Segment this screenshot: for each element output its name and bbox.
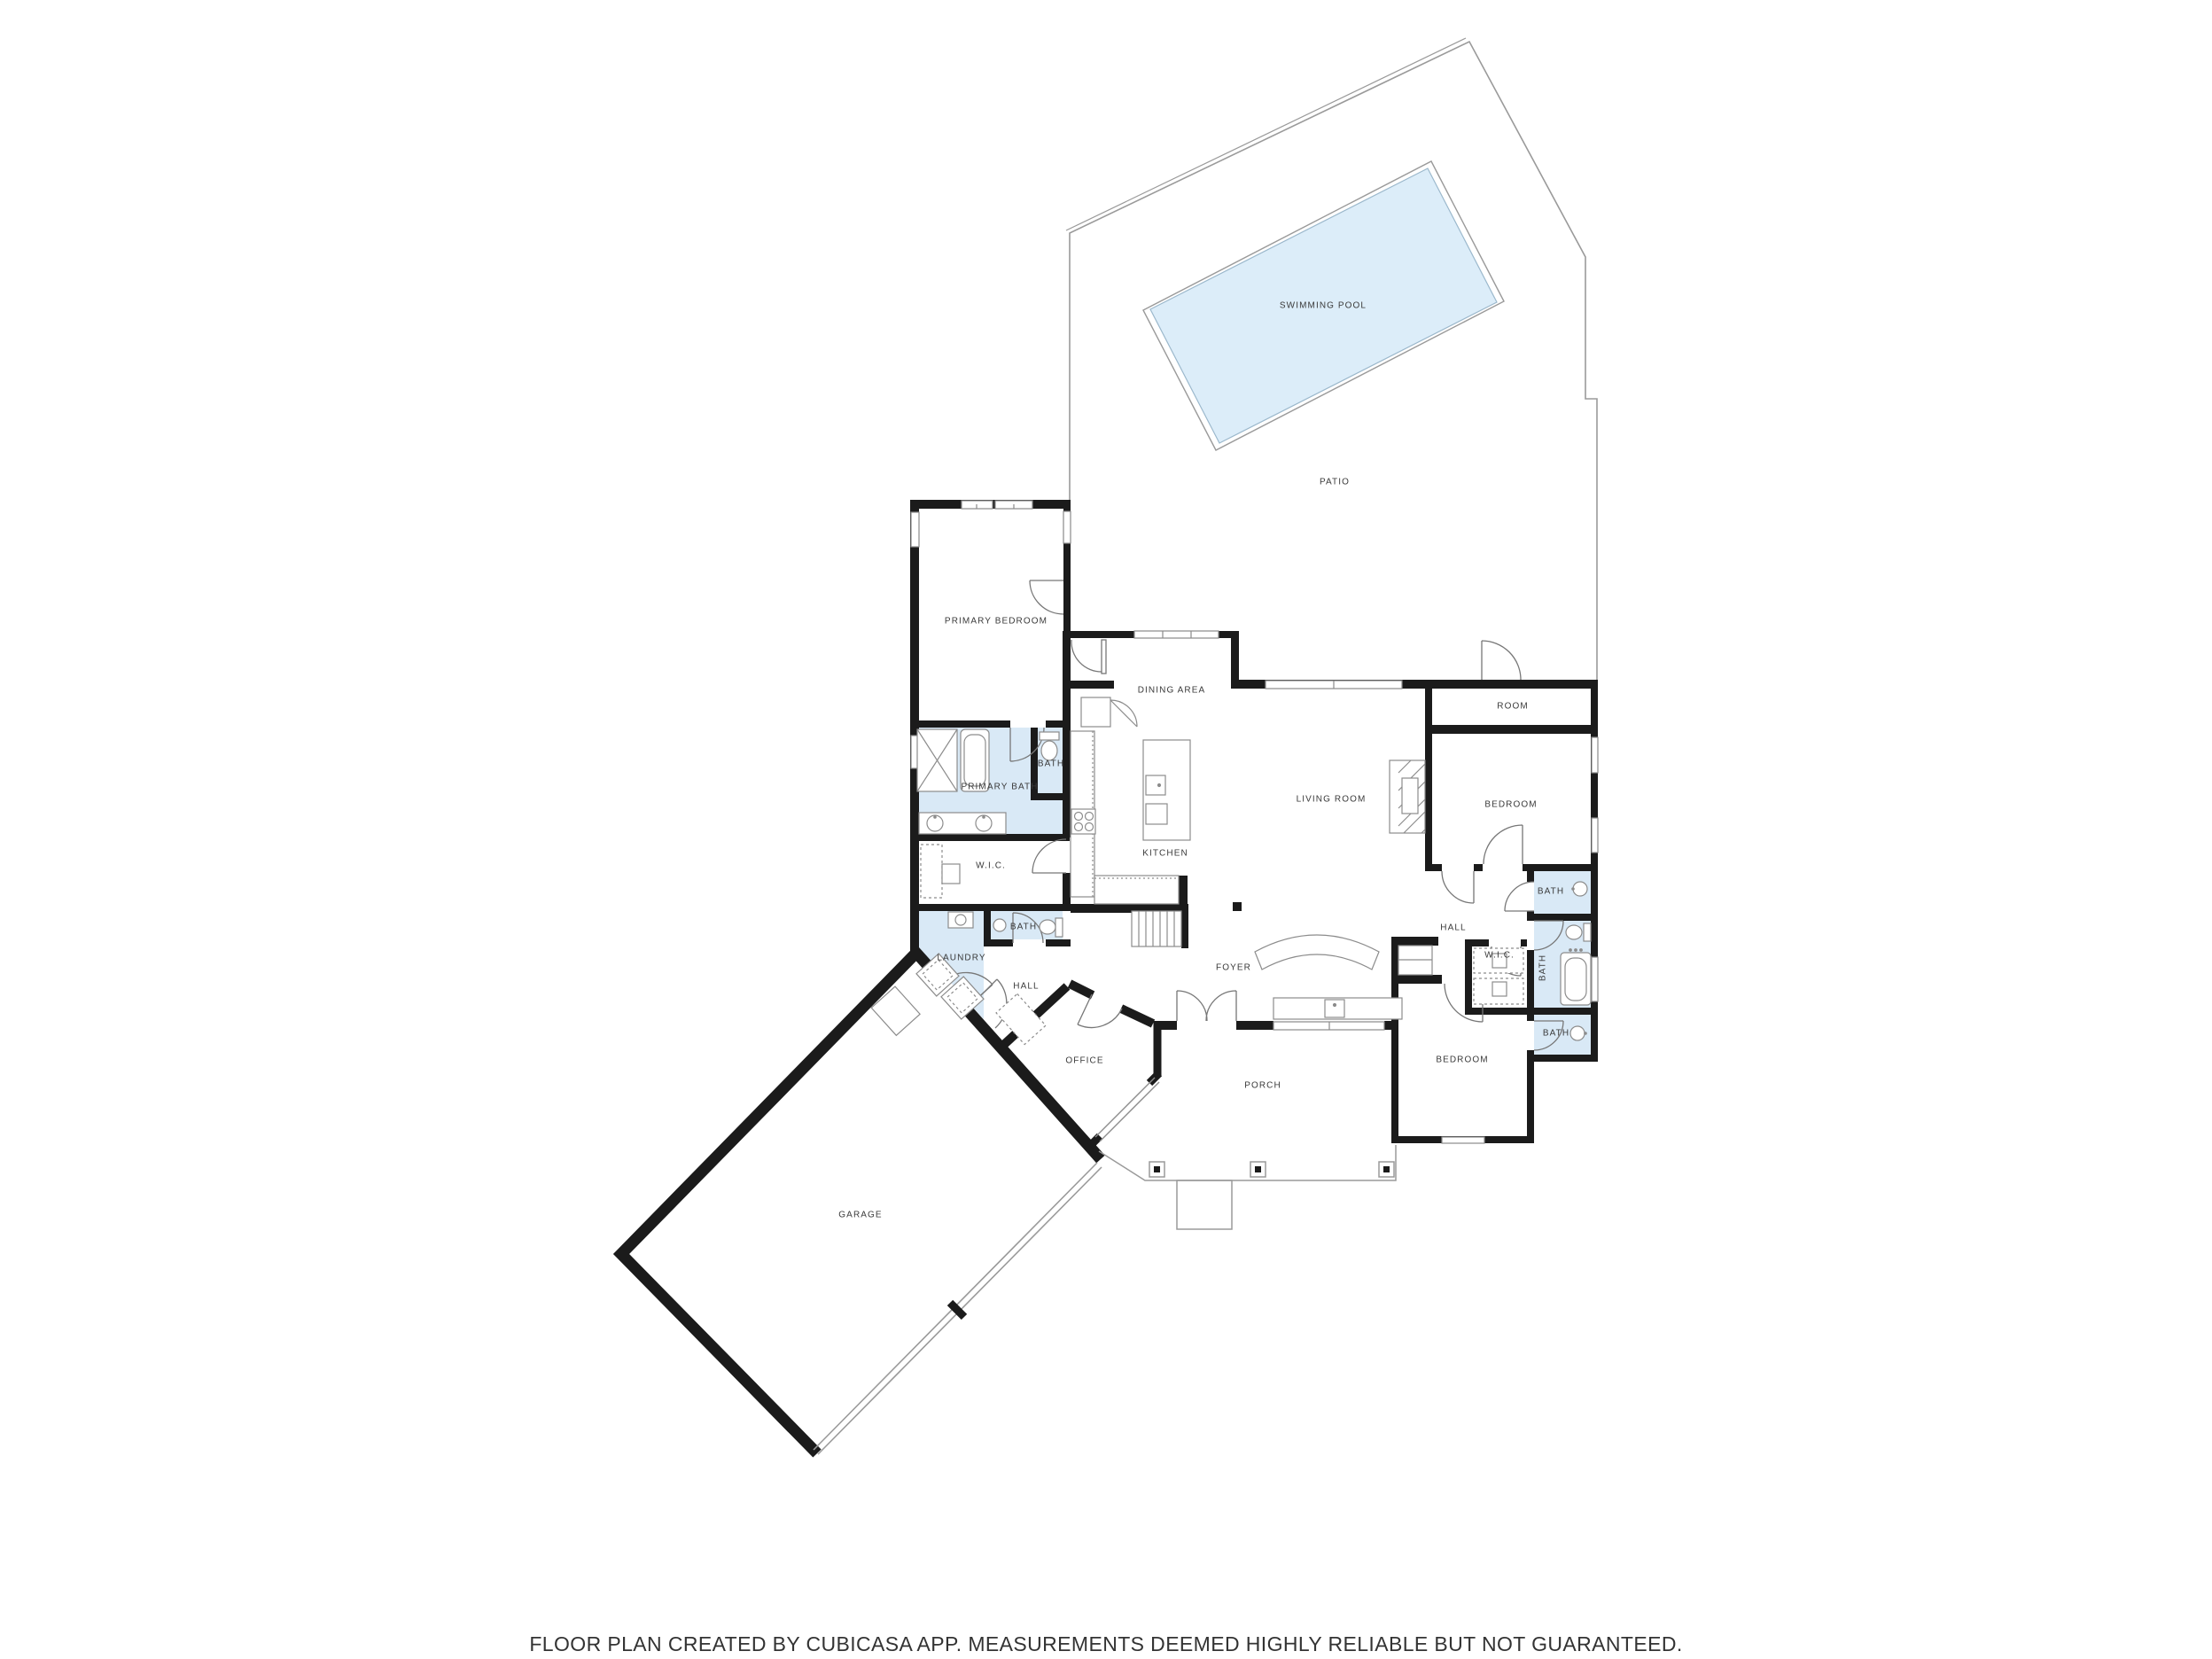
toilet-primary-wc <box>1040 732 1059 760</box>
room-label-hall-right: HALL <box>1440 923 1466 933</box>
room-label-bath-right-1: BATH <box>1538 887 1564 897</box>
room-label-hall-left: HALL <box>1013 982 1039 992</box>
footer-disclaimer: FLOOR PLAN CREATED BY CUBICASA APP. MEAS… <box>529 1632 1682 1656</box>
corner-pantry <box>1081 697 1137 727</box>
porch-posts <box>1149 1162 1394 1177</box>
fireplace <box>1390 760 1425 833</box>
room-label-room: ROOM <box>1497 702 1529 712</box>
room-label-bedroom-bottom: BEDROOM <box>1436 1055 1488 1065</box>
door-front-entry <box>1177 991 1236 1021</box>
door-dining-patio <box>1071 640 1102 672</box>
room-label-bath-right-2: BATH <box>1538 954 1548 981</box>
double-vanity <box>919 813 1006 834</box>
door-primary-bedroom <box>1030 580 1063 614</box>
sink-bath-mid <box>993 919 1006 931</box>
floor-plan-canvas: SWIMMING POOL PATIO PRIMARY BEDROOM DINI… <box>0 0 2212 1659</box>
hall-closet <box>1398 946 1432 975</box>
entry-counter <box>1273 998 1402 1019</box>
room-label-wic-left: W.I.C. <box>976 861 1006 871</box>
door-bedroom-right <box>1484 825 1523 864</box>
wic-left-closet <box>921 845 960 898</box>
room-label-primary-bedroom: PRIMARY BEDROOM <box>945 617 1048 627</box>
toilet-bath-right-2 <box>1566 923 1591 941</box>
laundry-sink <box>948 912 973 928</box>
foyer-bench <box>1255 935 1379 970</box>
kitchen-counter-south <box>1094 876 1179 904</box>
room-label-swimming-pool: SWIMMING POOL <box>1280 301 1367 311</box>
door-office <box>1078 994 1122 1027</box>
foyer-post <box>1233 902 1242 911</box>
door-wic-left <box>1032 839 1066 873</box>
porch-steps <box>1177 1180 1232 1229</box>
room-label-primary-bath: PRIMARY BATH <box>961 783 1038 792</box>
stairs <box>1132 911 1181 946</box>
door-hall-right <box>1442 871 1474 903</box>
hall-left-closet <box>996 993 1046 1044</box>
room-label-kitchen: KITCHEN <box>1142 849 1188 859</box>
door-leaf-dining <box>1102 640 1106 674</box>
room-label-bath-right-3: BATH <box>1543 1029 1569 1039</box>
door-bath-right-1 <box>1505 882 1534 911</box>
room-label-wic-right: W.I.C. <box>1484 951 1515 961</box>
porch-outline <box>1099 1145 1396 1229</box>
room-label-garage: GARAGE <box>838 1211 882 1220</box>
room-label-bath-mid: BATH <box>1010 923 1037 932</box>
room-label-foyer: FOYER <box>1216 963 1251 973</box>
room-label-dining-area: DINING AREA <box>1138 686 1206 696</box>
room-label-bath-primary-wc: BATH <box>1038 759 1064 769</box>
room-label-laundry: LAUNDRY <box>937 954 985 963</box>
bathtub-right <box>1561 949 1591 1005</box>
room-label-office: OFFICE <box>1065 1056 1103 1066</box>
kitchen-island <box>1143 740 1190 840</box>
door-room-patio <box>1482 641 1521 680</box>
room-label-bedroom-right: BEDROOM <box>1484 800 1537 810</box>
room-label-patio: PATIO <box>1320 478 1350 487</box>
room-label-porch: PORCH <box>1244 1081 1281 1091</box>
shower <box>917 729 957 791</box>
garage-door-post <box>950 1303 964 1317</box>
room-label-living-room: LIVING ROOM <box>1297 795 1367 805</box>
floor-plan-drawing <box>0 0 2212 1659</box>
range <box>1071 809 1095 834</box>
office-window-diagonal <box>1095 1078 1159 1141</box>
